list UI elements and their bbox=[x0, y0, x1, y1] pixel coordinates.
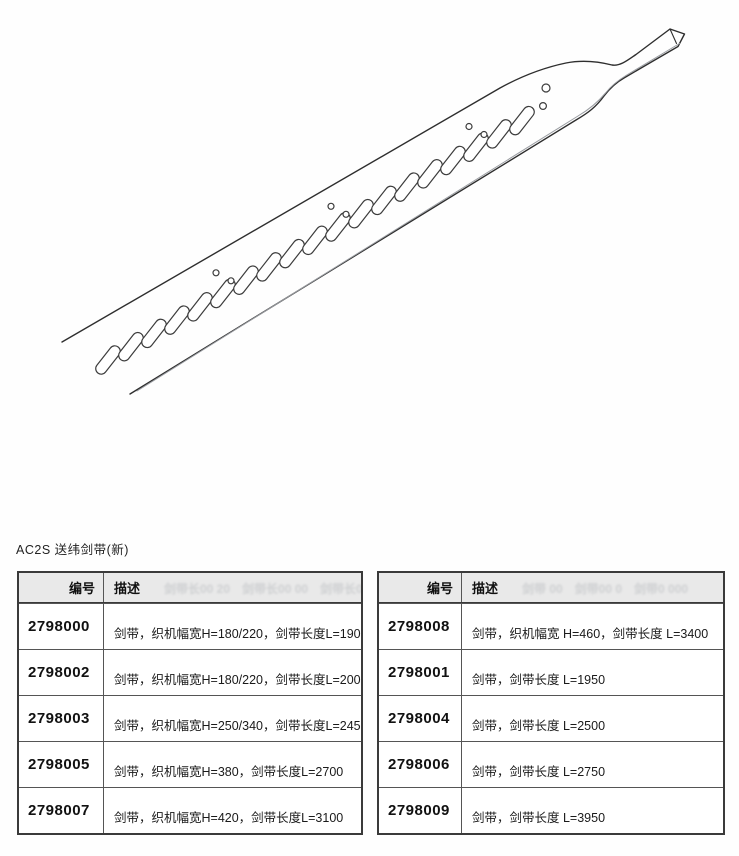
header-desc-label: 描述 bbox=[472, 578, 498, 597]
part-description: 剑带，织机幅宽H=420，剑带长度L=3100 bbox=[104, 788, 361, 833]
header-desc: 描述 剑带长00 20 剑带长00 00 剑带长000 bbox=[104, 573, 361, 602]
tape-slot bbox=[278, 237, 307, 270]
table-header-row: 编号 描述 剑带长00 20 剑带长00 00 剑带长000 bbox=[19, 573, 361, 603]
part-number: 2798005 bbox=[19, 742, 104, 787]
rapier-tape-svg bbox=[0, 0, 739, 530]
table-header-row: 编号 描述 剑带 00 剑带00 0 剑带0 000 bbox=[379, 573, 723, 603]
part-description: 剑带，织机幅宽H=180/220，剑带长度L=2000 bbox=[104, 650, 361, 695]
tape-thickness-line bbox=[137, 44, 680, 392]
table-row: 2798008 剑带，织机幅宽 H=460，剑带长度 L=3400 bbox=[379, 603, 723, 649]
tape-hole bbox=[343, 211, 349, 217]
tape-hole bbox=[466, 124, 472, 130]
tape-slot bbox=[439, 144, 468, 177]
tape-hole bbox=[542, 84, 550, 92]
slot-perforations bbox=[94, 104, 537, 376]
part-number: 2798008 bbox=[379, 604, 462, 649]
tape-slot bbox=[255, 251, 284, 284]
part-description: 剑带，剑带长度 L=2500 bbox=[462, 696, 723, 741]
page-title: AC2S 送纬剑带(新) bbox=[16, 539, 129, 558]
tape-slot bbox=[370, 184, 399, 217]
part-number: 2798004 bbox=[379, 696, 462, 741]
part-description: 剑带，剑带长度 L=1950 bbox=[462, 650, 723, 695]
tape-hole bbox=[481, 132, 487, 138]
header-desc-label: 描述 bbox=[114, 578, 140, 597]
table-row: 2798009 剑带，剑带长度 L=3950 bbox=[379, 787, 723, 833]
part-number: 2798009 bbox=[379, 788, 462, 833]
tape-slot bbox=[117, 330, 146, 363]
part-description: 剑带，织机幅宽 H=460，剑带长度 L=3400 bbox=[462, 604, 723, 649]
tape-slot bbox=[94, 344, 123, 377]
tape-slot bbox=[232, 264, 261, 297]
tape-hole bbox=[228, 278, 234, 284]
tape-slot bbox=[163, 304, 192, 337]
tape-hole bbox=[540, 103, 547, 110]
tape-slot bbox=[301, 224, 330, 257]
table-row: 2798004 剑带，剑带长度 L=2500 bbox=[379, 695, 723, 741]
tape-slot bbox=[140, 317, 169, 350]
part-description: 剑带，织机幅宽H=380，剑带长度L=2700 bbox=[104, 742, 361, 787]
tape-slot bbox=[485, 118, 514, 151]
part-number: 2798002 bbox=[19, 650, 104, 695]
table-row: 2798007 剑带，织机幅宽H=420，剑带长度L=3100 bbox=[19, 787, 361, 833]
tape-slot bbox=[416, 157, 445, 190]
part-description: 剑带，剑带长度 L=3950 bbox=[462, 788, 723, 833]
tape-slot bbox=[186, 290, 215, 323]
header-id: 编号 bbox=[379, 573, 462, 602]
parts-table-left: 编号 描述 剑带长00 20 剑带长00 00 剑带长000 2798000 剑… bbox=[17, 571, 363, 835]
table-row: 2798001 剑带，剑带长度 L=1950 bbox=[379, 649, 723, 695]
tape-hole bbox=[328, 203, 334, 209]
table-row: 2798006 剑带，剑带长度 L=2750 bbox=[379, 741, 723, 787]
tape-hole bbox=[213, 270, 219, 276]
part-description: 剑带，织机幅宽H=180/220，剑带长度L=1900 bbox=[104, 604, 361, 649]
parts-table-right: 编号 描述 剑带 00 剑带00 0 剑带0 000 2798008 剑带，织机… bbox=[377, 571, 725, 835]
part-number: 2798000 bbox=[19, 604, 104, 649]
tape-slot bbox=[347, 197, 376, 230]
header-desc: 描述 剑带 00 剑带00 0 剑带0 000 bbox=[462, 573, 723, 602]
scan-ghost-text: 剑带长00 20 剑带长00 00 剑带长000 bbox=[164, 580, 361, 597]
header-id: 编号 bbox=[19, 573, 104, 602]
table-row: 2798002 剑带，织机幅宽H=180/220，剑带长度L=2000 bbox=[19, 649, 361, 695]
table-row: 2798000 剑带，织机幅宽H=180/220，剑带长度L=1900 bbox=[19, 603, 361, 649]
tape-slot bbox=[393, 171, 422, 204]
tape-slot bbox=[508, 104, 537, 137]
part-description: 剑带，织机幅宽H=250/340，剑带长度L=2450 bbox=[104, 696, 361, 741]
part-number: 2798007 bbox=[19, 788, 104, 833]
part-number: 2798003 bbox=[19, 696, 104, 741]
part-number: 2798001 bbox=[379, 650, 462, 695]
table-row: 2798003 剑带，织机幅宽H=250/340，剑带长度L=2450 bbox=[19, 695, 361, 741]
scan-ghost-text: 剑带 00 剑带00 0 剑带0 000 bbox=[522, 580, 688, 597]
part-number: 2798006 bbox=[379, 742, 462, 787]
part-description: 剑带，剑带长度 L=2750 bbox=[462, 742, 723, 787]
rivet-holes bbox=[213, 84, 550, 284]
table-row: 2798005 剑带，织机幅宽H=380，剑带长度L=2700 bbox=[19, 741, 361, 787]
rapier-tape-drawing bbox=[0, 0, 739, 530]
